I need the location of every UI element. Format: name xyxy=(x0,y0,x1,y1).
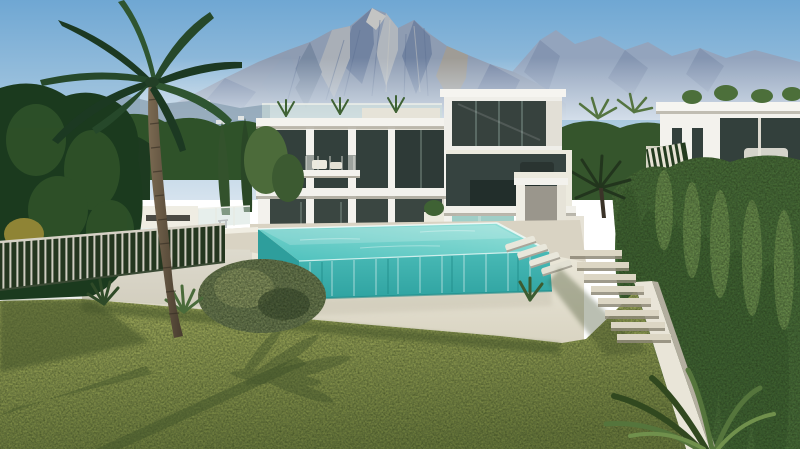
scene-canvas xyxy=(0,0,800,449)
terrace-sofa xyxy=(520,162,554,173)
boulder-bush xyxy=(198,259,326,333)
villa-render-image xyxy=(0,0,800,449)
penthouse xyxy=(440,89,566,150)
